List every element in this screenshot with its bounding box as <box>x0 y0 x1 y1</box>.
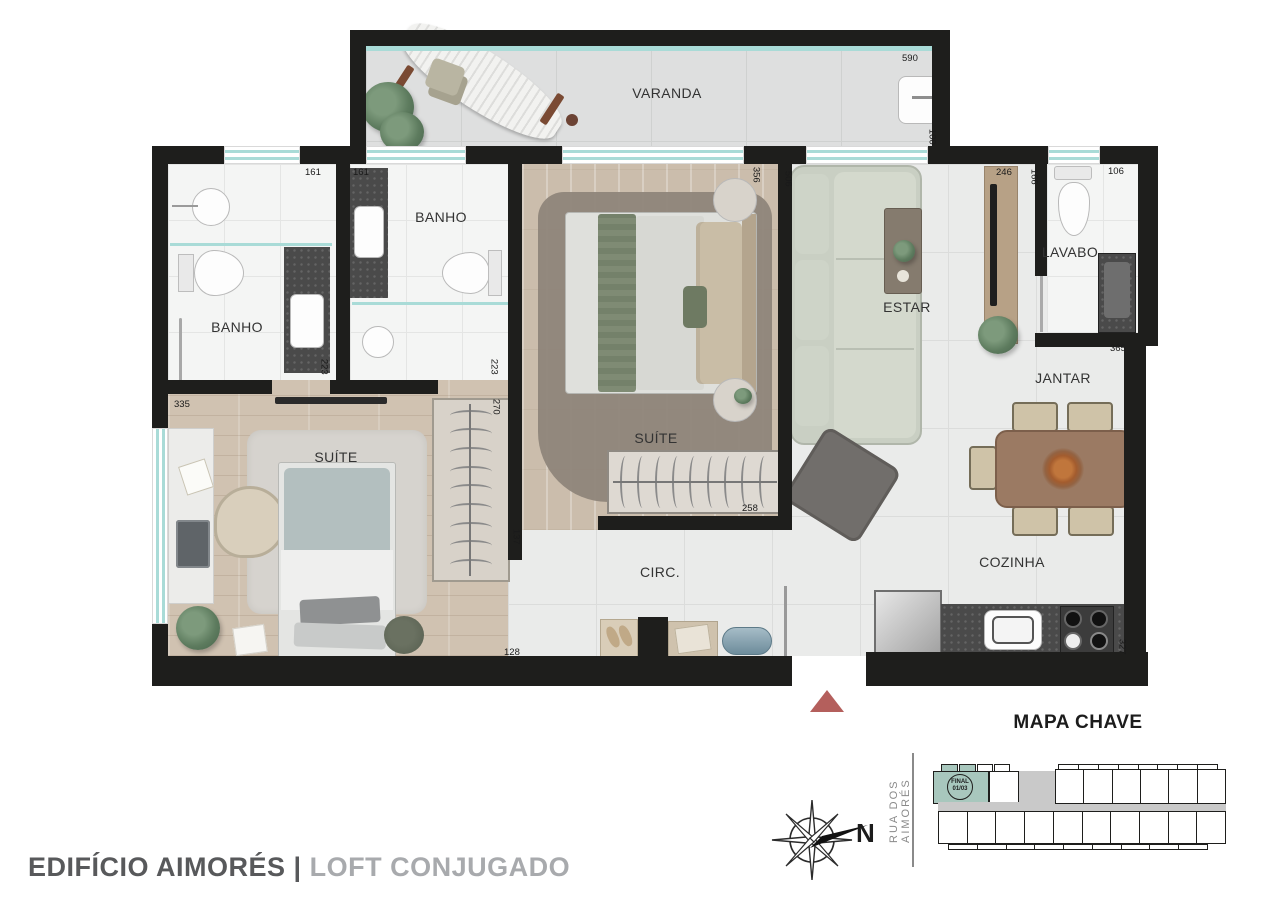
entry-bag <box>722 627 772 655</box>
dimension-label: 166 <box>1029 169 1039 185</box>
coffee-table-plant <box>893 240 915 262</box>
suite-center-nightstand-top <box>713 178 757 222</box>
hanger-icon <box>450 410 492 421</box>
varanda-sink-faucet <box>912 96 932 99</box>
stove-burner <box>1066 612 1080 626</box>
room-label-cozinha: COZINHA <box>979 554 1045 570</box>
suite-left-plant <box>176 606 220 650</box>
wall <box>638 617 668 661</box>
lavabo-sink <box>1104 262 1130 318</box>
banho-left-shower-arm <box>172 205 198 207</box>
plan-title-building: EDIFÍCIO AIMORÉS <box>28 852 286 882</box>
wall <box>1138 146 1158 346</box>
room-label-banho-left: BANHO <box>211 319 263 335</box>
key-map-top-row <box>1055 769 1226 804</box>
dining-chair <box>1068 506 1114 536</box>
suite-left-headboard-pillow <box>284 468 390 552</box>
wall <box>866 652 1148 686</box>
dimension-label: 506 <box>783 171 793 187</box>
sofa-back-cushion <box>795 174 829 254</box>
entry-door-leaf <box>784 586 787 658</box>
unit-badge-line2: 01/03 <box>948 786 972 793</box>
key-map-title: MAPA CHAVE <box>1013 712 1142 734</box>
wall <box>168 380 272 394</box>
unit-badge: FINAL 01/03 <box>947 774 973 800</box>
room-label-banho-right: BANHO <box>415 209 467 225</box>
suite-left-laptop <box>176 520 210 568</box>
wall <box>300 146 366 164</box>
wall <box>928 146 1048 164</box>
wall <box>1124 346 1146 686</box>
dimension-label: 270 <box>491 399 501 415</box>
dimension-label: 161 <box>353 168 369 178</box>
hanger-icon <box>450 484 492 495</box>
window <box>224 146 300 164</box>
suite-left-closet <box>432 398 510 582</box>
dimension-label: 106 <box>1108 167 1124 177</box>
lavabo-door-leaf <box>1040 276 1043 332</box>
hanger-icon <box>450 466 492 477</box>
wall <box>152 146 168 394</box>
wall <box>152 394 168 428</box>
dimension-label: 365 <box>1110 344 1126 354</box>
wall <box>598 516 792 530</box>
hanger-icon <box>450 447 492 458</box>
key-map-building: FINAL 01/03 <box>928 758 1230 852</box>
sofa-back-cushion <box>795 346 829 426</box>
dimension-label: 223 <box>319 359 329 375</box>
wall <box>336 164 350 380</box>
lavabo-toilet-tank <box>1054 166 1092 180</box>
plan-title-variant: LOFT CONJUGADO <box>310 852 571 882</box>
floor-plan-page: VARANDA BANHO BANHO SUÍTE SUÍTE ESTAR LA… <box>0 0 1280 905</box>
entrance-arrow-icon <box>810 690 844 712</box>
room-label-suite-center: SUÍTE <box>634 430 677 446</box>
hanger-icon <box>450 540 492 551</box>
plan-title: EDIFÍCIO AIMORÉS | LOFT CONJUGADO <box>28 852 570 883</box>
sliding-door <box>562 146 744 164</box>
street-line <box>912 753 914 867</box>
suite-left-mat <box>232 624 268 656</box>
dimension-label: 128 <box>504 648 520 658</box>
dimension-label: 258 <box>742 504 758 514</box>
suite-left-foot-pillow-dark <box>299 596 380 626</box>
dining-chair <box>1012 506 1058 536</box>
suite-center-headboard <box>742 214 756 392</box>
sofa-back-cushion <box>795 260 829 340</box>
hanger-icon <box>450 503 492 514</box>
room-label-circ: CIRC. <box>640 564 680 580</box>
fridge <box>874 590 942 660</box>
hanger-icon <box>450 522 492 533</box>
sofa-cushion-line <box>836 348 914 350</box>
dimension-label: 137 <box>511 529 521 545</box>
room-label-lavabo: LAVABO <box>1042 244 1098 260</box>
street-label: RUA DOS AIMORÉS <box>888 756 912 866</box>
banho-left-sink <box>290 294 324 348</box>
dimension-label: 335 <box>174 400 190 410</box>
suite-left-closet-rail <box>469 404 471 576</box>
dimension-label: 327 <box>1117 639 1127 655</box>
kitchen-sink-basin <box>992 616 1034 644</box>
dining-chair <box>1067 402 1113 432</box>
dining-chair <box>969 446 997 490</box>
stove-burner <box>1092 634 1106 648</box>
banho-left-toilet-tank <box>178 254 194 292</box>
banho-right-shower-drain <box>362 326 394 358</box>
room-label-suite-left: SUÍTE <box>314 449 357 465</box>
banho-right-sink <box>354 206 384 258</box>
tv-screen <box>990 184 997 306</box>
window <box>366 146 466 164</box>
compass-rose-icon <box>770 798 870 882</box>
dimension-label: 223 <box>489 359 499 375</box>
suite-center-lumbar-pillow <box>683 286 707 328</box>
banho-left-shower-glass <box>170 243 332 246</box>
wall <box>152 656 792 686</box>
plan-title-divider: | <box>294 852 302 882</box>
wall <box>350 30 366 152</box>
suite-left-foot-pillow-light <box>294 622 387 649</box>
key-map-unit <box>989 771 1019 804</box>
window <box>152 428 168 624</box>
suite-left-desk-chair <box>214 486 286 558</box>
compass-north-label: N <box>856 818 875 849</box>
wall <box>508 146 522 560</box>
room-label-jantar: JANTAR <box>1035 370 1091 386</box>
suite-left-pouf <box>384 616 424 654</box>
dining-chair <box>1012 402 1058 432</box>
banho-left-shower-head <box>192 188 230 226</box>
varanda-sink <box>898 76 934 124</box>
window <box>1048 146 1100 164</box>
suite-left-tv <box>275 397 387 404</box>
hammock-knot <box>566 114 578 126</box>
suite-left-desk <box>168 428 214 604</box>
stove-burner <box>1092 612 1106 626</box>
entry-tray-inner <box>674 624 711 654</box>
room-label-varanda: VARANDA <box>632 85 701 101</box>
unit-badge-line1: FINAL <box>948 779 972 786</box>
banho-left-towel-bar <box>179 318 182 384</box>
wall <box>330 380 438 394</box>
room-label-estar: ESTAR <box>883 299 931 315</box>
hanger-icon <box>450 428 492 439</box>
banho-right-shower-glass <box>352 302 508 305</box>
coffee-table-decor <box>897 270 909 282</box>
varanda-railing-glass <box>366 46 932 51</box>
wall <box>350 30 950 46</box>
dimension-label: 161 <box>305 168 321 178</box>
suite-center-closet-rail <box>613 481 777 483</box>
dimension-label: 100 <box>927 129 937 145</box>
dimension-label: 590 <box>902 54 918 64</box>
banho-right-toilet-tank <box>488 250 502 296</box>
tv-panel-plant <box>978 316 1018 354</box>
suite-center-nightstand-plant <box>734 388 752 404</box>
dimension-label: 246 <box>996 168 1012 178</box>
sliding-door <box>806 146 928 164</box>
dimension-label: 356 <box>751 167 761 183</box>
key-map-bottom-row <box>938 811 1226 844</box>
wall <box>744 146 806 164</box>
key-map-bottom-tabs <box>948 844 1208 850</box>
hanger-icon <box>450 559 492 570</box>
dining-centerpiece <box>1042 448 1084 490</box>
wall <box>778 146 792 530</box>
stove-burner <box>1066 634 1080 648</box>
suite-center-bed-blanket <box>598 214 636 392</box>
